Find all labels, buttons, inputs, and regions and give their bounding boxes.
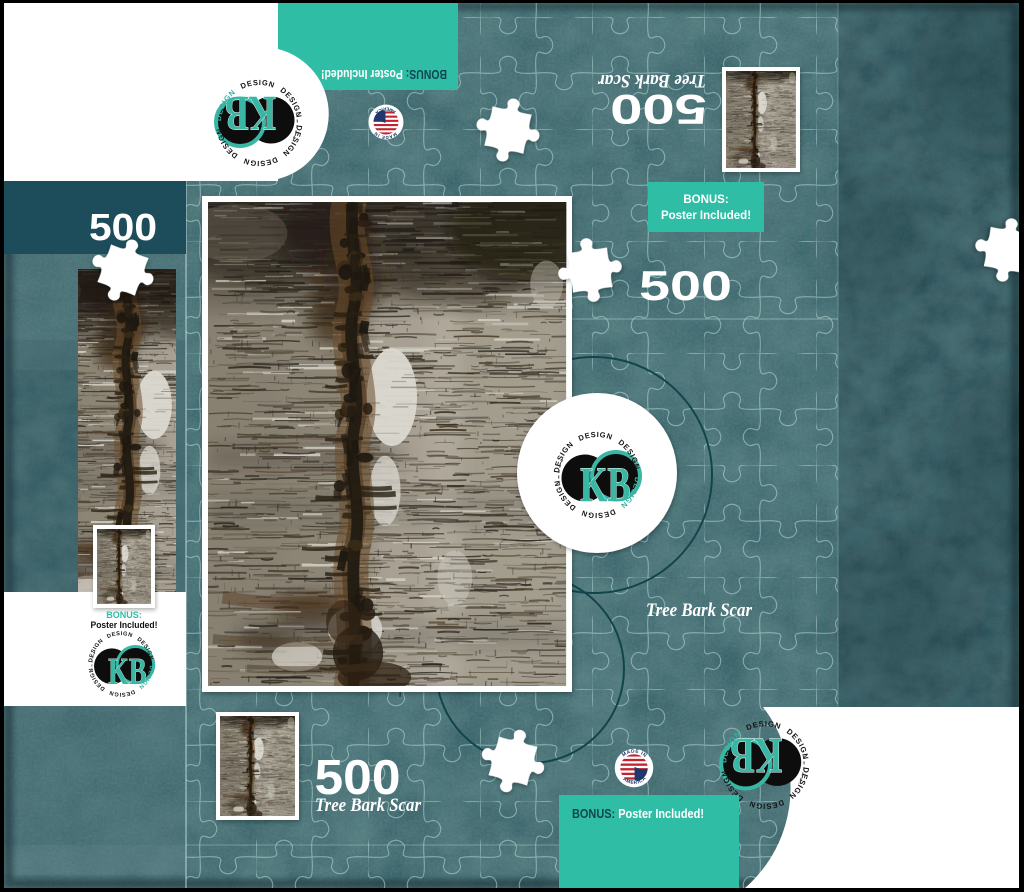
- svg-text:Tree Bark Scar: Tree Bark Scar: [315, 795, 422, 816]
- svg-text:BONUS: Poster Included!: BONUS: Poster Included!: [572, 806, 704, 821]
- svg-text:500: 500: [89, 207, 157, 249]
- svg-text:BONUS: Poster Included!: BONUS: Poster Included!: [321, 67, 447, 81]
- svg-text:Poster Included!: Poster Included!: [661, 210, 751, 222]
- svg-text:500: 500: [610, 86, 707, 133]
- svg-text:BONUS:: BONUS:: [683, 194, 728, 206]
- svg-text:Tree Bark Scar: Tree Bark Scar: [646, 600, 753, 621]
- svg-text:BONUS:: BONUS:: [106, 610, 142, 620]
- svg-text:500: 500: [639, 262, 732, 309]
- svg-text:Poster Included!: Poster Included!: [91, 620, 158, 630]
